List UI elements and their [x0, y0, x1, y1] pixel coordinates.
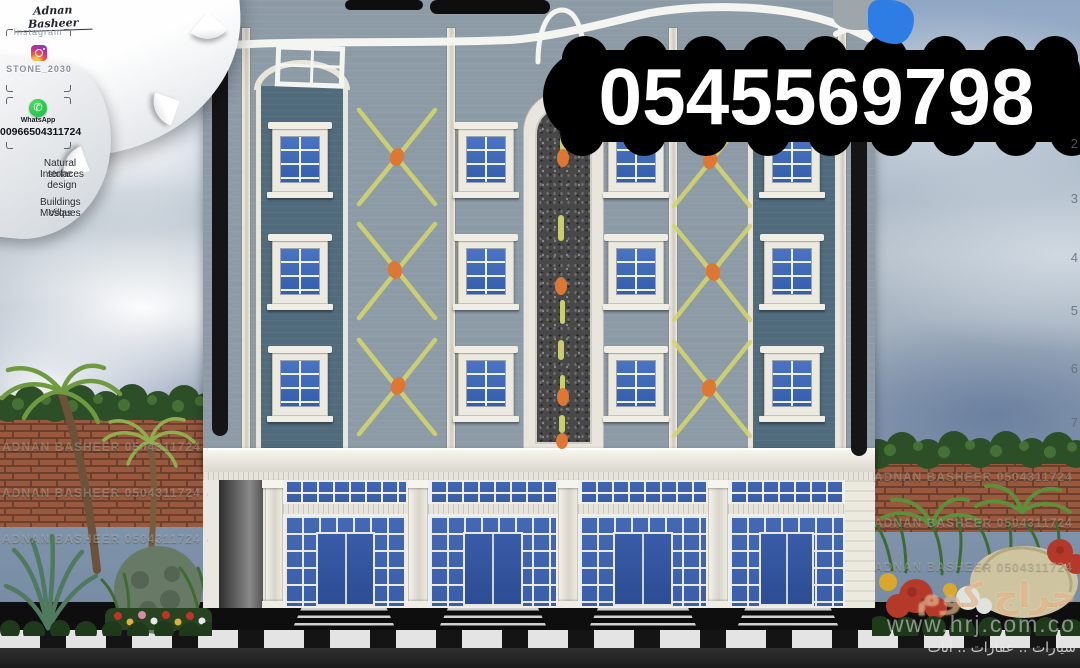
shop-door [759, 532, 813, 606]
window [764, 352, 820, 416]
corner-bracket [6, 142, 13, 149]
cornice [203, 448, 875, 472]
storefront [428, 480, 558, 608]
storefront [283, 480, 408, 608]
shop-steps [292, 608, 396, 630]
asphalt-road [0, 648, 1080, 668]
ground-floor [203, 480, 875, 608]
storefront [578, 480, 708, 608]
spandrel [728, 504, 845, 514]
tagline-line: Interfaces design [40, 169, 84, 191]
watermark-tile-row: ADNAN BASHEER 0504311724 ٠٥٠٤٣١١٧٢٤ [874, 516, 1078, 530]
shop-pilaster [408, 480, 428, 608]
page-number: 6 [1062, 361, 1078, 376]
page-number: 3 [1062, 191, 1078, 206]
instagram-icon [31, 45, 47, 61]
instagram-handle: STONE_2030 [0, 64, 78, 74]
watermark-tile-row: ADNAN BASHEER 0504311724 ٠٥٠٤٣١١٧٢٤ [2, 532, 208, 546]
corner-bracket [64, 142, 71, 149]
services-tagline: Buildings Villas Mosques [0, 197, 80, 208]
watermark-tile-row: ADNAN BASHEER 0504311724 ٠٥٠٤٣١١٧٢٤ [2, 486, 208, 500]
shop-steps [588, 608, 698, 630]
site-watermark-tagline: سيارات .. عقارات .. أثاث [928, 640, 1076, 656]
granite-strip [535, 106, 592, 444]
corner-recess [219, 480, 263, 608]
corner-bracket [64, 97, 71, 104]
phone-number: 0545569798 [558, 57, 1074, 137]
window [458, 352, 514, 416]
watermark-tile-row: ADNAN BASHEER 0504311724 ٠٥٠٤٣١١٧٢٤ [874, 560, 1078, 574]
window [458, 240, 514, 304]
corner-bracket [6, 97, 13, 104]
shop-steps [438, 608, 548, 630]
shop-pilaster [708, 480, 728, 608]
shop-pilaster [558, 480, 578, 608]
page-number: 7 [1062, 415, 1078, 430]
blue-splash-icon [868, 0, 914, 44]
shop-glass [428, 514, 558, 608]
window [608, 240, 664, 304]
page-number: 5 [1062, 303, 1078, 318]
shop-glass [283, 514, 408, 608]
watermark-tile-row: ADNAN BASHEER 0504311724 ٠٥٠٤٣١١٧٢٤ [2, 440, 208, 454]
shop-steps [736, 608, 840, 630]
shop-door [463, 532, 524, 606]
window [272, 128, 328, 192]
torn-edge-left [212, 52, 228, 436]
shop-door [613, 532, 674, 606]
transom-glass [578, 480, 708, 504]
spandrel [578, 504, 708, 514]
whatsapp-label: WhatsApp [0, 117, 76, 124]
window [272, 240, 328, 304]
page-number: 2 [1062, 136, 1078, 151]
window [608, 352, 664, 416]
window [272, 352, 328, 416]
page-number: 4 [1062, 250, 1078, 265]
window [764, 240, 820, 304]
spandrel [428, 504, 558, 514]
corner-bracket [64, 29, 71, 36]
transom-glass [283, 480, 408, 504]
window [458, 128, 514, 192]
facade-pilaster [242, 28, 250, 452]
corner-bracket [6, 29, 13, 36]
cornice-band [203, 472, 875, 480]
stone-facade-advert: ADNAN BASHEER 0504311724 ٠٥٠٤٣١١٧٢٤ ADNA… [0, 0, 1080, 668]
site-watermark-name: حراج كوم [916, 576, 1076, 616]
torn-edge-right [851, 126, 867, 456]
shop-pilaster [265, 480, 283, 608]
transom-glass [728, 480, 845, 504]
corner-quoin [845, 480, 875, 608]
watermark-tile-row: ADNAN BASHEER 0504311724 ٠٥٠٤٣١١٧٢٤ [874, 470, 1078, 484]
corner-bracket [6, 85, 13, 92]
shop-glass [728, 514, 845, 608]
services-tagline: Natural stone Interfaces design [0, 158, 80, 169]
site-watermark-url: www.hrj.com.co [887, 611, 1076, 638]
transom-glass [428, 480, 558, 504]
whatsapp-number: 00966504311724 [0, 126, 78, 138]
shop-door [316, 532, 374, 606]
shop-glass [578, 514, 708, 608]
whatsapp-icon: ✆ [29, 99, 47, 117]
storefront [728, 480, 845, 608]
spandrel [283, 504, 408, 514]
corner-bracket [64, 85, 71, 92]
tagline-line: Mosques [40, 208, 81, 219]
